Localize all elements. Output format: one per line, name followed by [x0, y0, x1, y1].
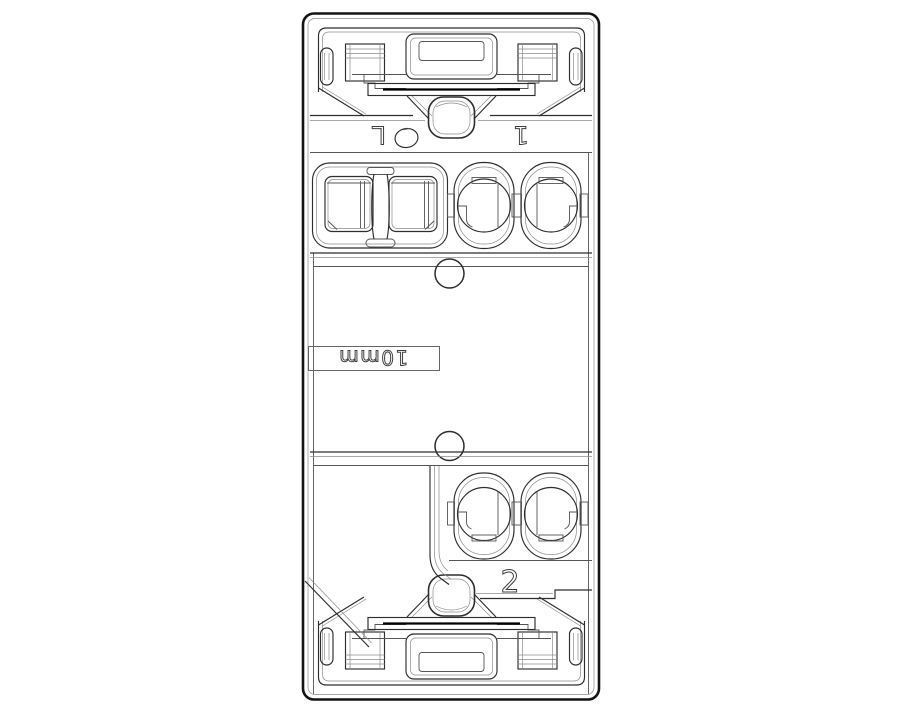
release-tab — [406, 34, 497, 79]
test-point-oval — [394, 127, 420, 150]
slot-left-inner — [325, 53, 330, 80]
cap-edge-line — [480, 590, 592, 599]
slot-right-inner — [574, 53, 579, 80]
wire-port-bottom-right — [521, 473, 581, 559]
button-pocket-right-inner — [392, 180, 434, 229]
strip-length-label: 10mm — [338, 346, 408, 370]
port-outline — [521, 163, 581, 249]
wire-port-bottom-left — [454, 473, 514, 559]
port-contact-detail — [537, 184, 578, 227]
cluster-outline — [313, 163, 448, 248]
button-pocket-left — [325, 177, 373, 232]
port-outline — [454, 163, 514, 249]
clip-block-right — [518, 44, 557, 81]
cavity-wall-inner2 — [439, 466, 448, 571]
chamfer-right-inner — [537, 87, 581, 114]
housing-side-walls — [314, 153, 589, 694]
technical-drawing: L 1 — [0, 0, 900, 720]
terminal-block-bottom — [305, 466, 592, 647]
terminal-block-top — [313, 163, 589, 249]
din-latch-assembly — [319, 28, 585, 138]
mid-housing: 10mm — [309, 259, 465, 461]
section-boundary-lower — [310, 452, 592, 466]
cavity-chamfer — [305, 581, 369, 647]
release-button-cluster — [313, 163, 448, 248]
terminal-l-label: L — [372, 121, 386, 150]
button-pocket-right-detail — [391, 181, 435, 230]
port-contact-detail — [459, 184, 499, 227]
wire-port-top-right — [521, 163, 581, 249]
cavity-wall-inner — [435, 466, 452, 580]
terminal-1-label: 1 — [513, 121, 529, 150]
release-tab-pad — [419, 42, 484, 61]
divider-bottom-cap — [366, 239, 395, 247]
marking-band-bottom: 2 — [476, 565, 592, 600]
port-bore — [525, 179, 578, 232]
port-bore — [458, 179, 511, 232]
button-pocket-left-detail — [327, 181, 371, 230]
chamfer-left — [319, 88, 365, 116]
mounting-hole-upper — [435, 259, 464, 288]
port-inner — [526, 478, 577, 555]
chamfer-left-inner — [323, 87, 367, 114]
port-bore — [458, 488, 511, 541]
clip-block-left-detail — [346, 44, 385, 81]
cavity-wall — [430, 466, 449, 585]
release-tab-inner — [411, 38, 493, 75]
button-pocket-right — [389, 177, 437, 232]
port-outline — [454, 473, 514, 559]
divider-top-cap — [367, 168, 394, 175]
chamfer-right — [539, 88, 585, 116]
din-latch-assembly-bottom — [319, 575, 585, 685]
knob-flares — [407, 96, 496, 119]
terminal-2-label: 2 — [500, 565, 519, 600]
marking-band-top: L 1 — [310, 121, 592, 153]
port-contact-detail — [537, 492, 578, 535]
slot-right — [570, 48, 583, 85]
clip-block-right-detail — [518, 44, 557, 81]
divider-waist — [372, 174, 390, 239]
wire-port-top-left — [454, 163, 514, 249]
latch-knob-arc — [436, 103, 467, 107]
latch-cavity-outline — [319, 28, 585, 92]
port-outline — [521, 473, 581, 559]
port-contact-detail — [459, 492, 499, 535]
button-pocket-left-inner — [328, 180, 370, 229]
clip-block-left — [346, 44, 385, 81]
cap-edge-top — [310, 116, 592, 121]
drawing-canvas: L 1 — [0, 0, 900, 720]
